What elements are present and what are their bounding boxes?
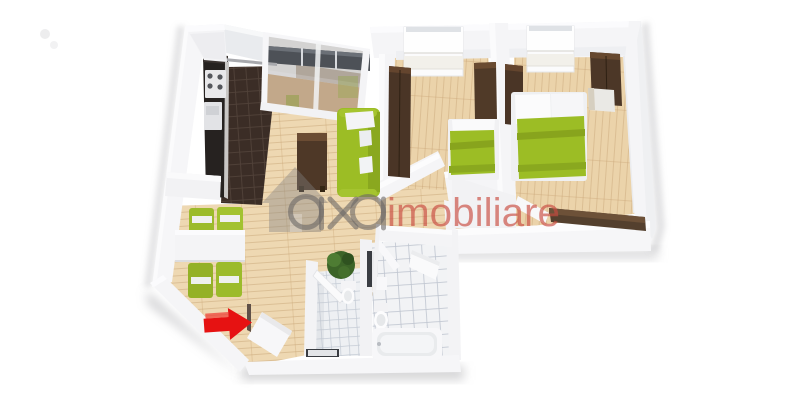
svg-text:imobiliare: imobiliare bbox=[387, 191, 560, 235]
